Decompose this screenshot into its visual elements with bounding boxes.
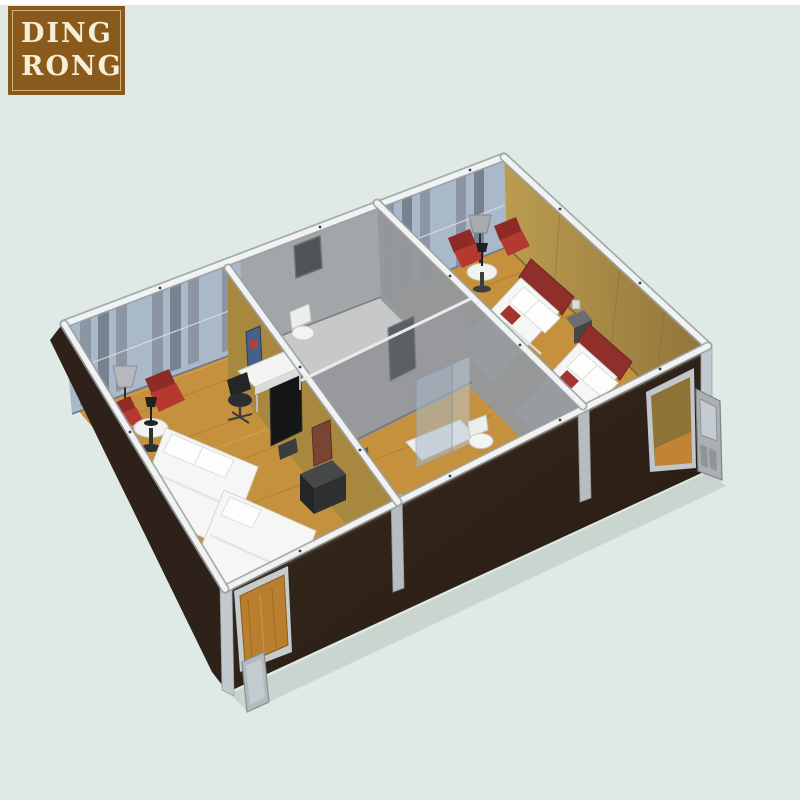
house-3d-render xyxy=(0,0,800,800)
render-stage: DING RONG xyxy=(0,0,800,800)
brand-logo-line1: DING xyxy=(21,18,120,51)
brand-logo: DING RONG xyxy=(8,6,125,95)
brand-logo-frame: DING RONG xyxy=(12,10,121,91)
brand-logo-line2: RONG xyxy=(21,51,120,84)
wall-poster xyxy=(312,420,332,466)
left-open-door xyxy=(242,652,269,712)
module-joint-post xyxy=(578,404,591,502)
product-image-page: { "logo": { "line1": "DING", "line2": "R… xyxy=(0,0,800,800)
right-open-door xyxy=(696,389,722,480)
south-corner-post xyxy=(220,584,234,696)
